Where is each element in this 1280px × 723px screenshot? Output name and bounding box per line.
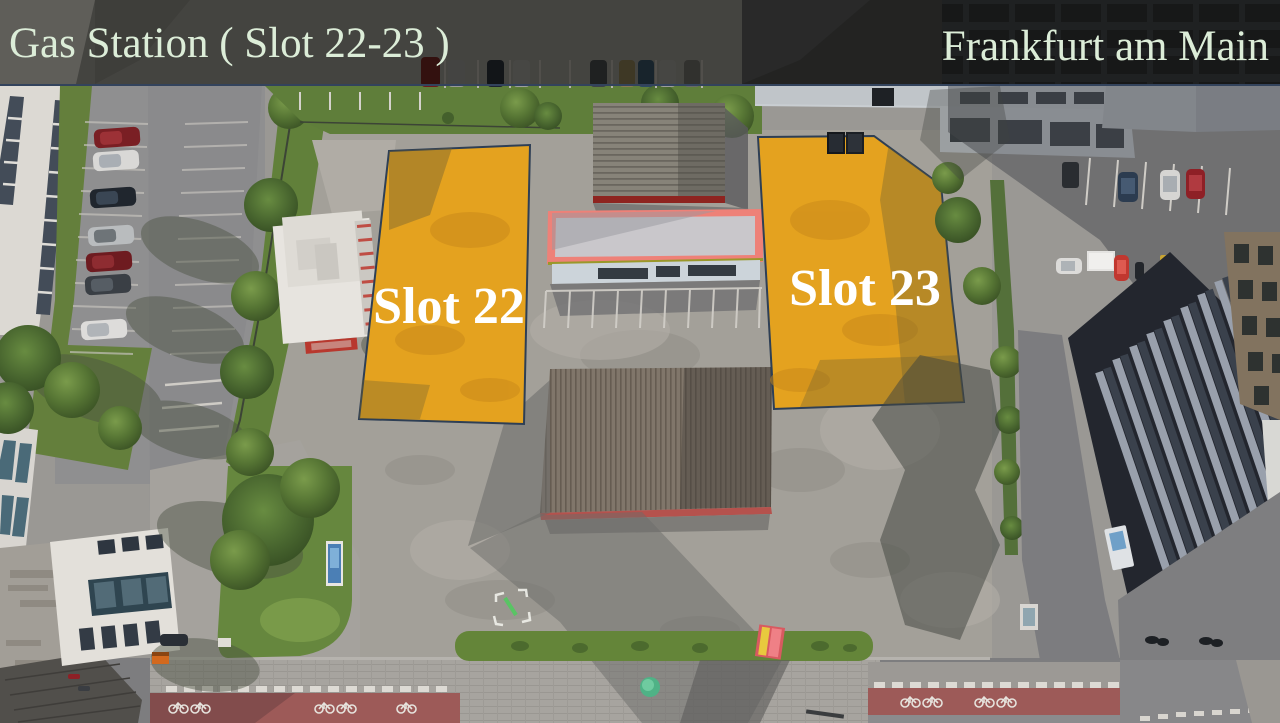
svg-text:Slot 23: Slot 23 bbox=[789, 260, 941, 317]
svg-text:Frankfurt am Main: Frankfurt am Main bbox=[942, 23, 1269, 70]
svg-text:Slot 22: Slot 22 bbox=[373, 278, 525, 335]
svg-text:Gas Station ( Slot 22-23 ): Gas Station ( Slot 22-23 ) bbox=[9, 20, 450, 67]
